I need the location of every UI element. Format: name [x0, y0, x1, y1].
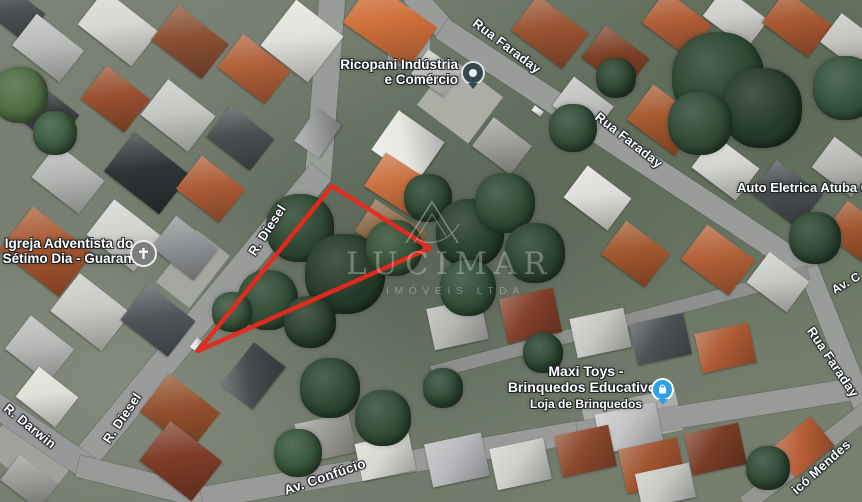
shopping-pin-circle [651, 378, 674, 401]
map-feature [284, 296, 336, 348]
shopping-bag-icon [657, 384, 668, 395]
map-feature [221, 342, 286, 409]
place-label-line: Auto Eletrica Atuba C [737, 181, 862, 196]
poi-pin-circle [461, 61, 485, 85]
map-feature [505, 223, 565, 283]
map-feature [424, 432, 490, 487]
satellite-map[interactable]: LUCIMAR IMÓVEIS LTDA Rua Faraday Rua Far… [0, 0, 862, 502]
map-feature [789, 212, 841, 264]
map-feature [300, 358, 360, 418]
church-pin-icon[interactable] [130, 240, 157, 267]
map-feature [78, 0, 159, 66]
map-feature [440, 260, 496, 316]
map-feature [176, 156, 245, 223]
map-feature [423, 368, 463, 408]
map-feature [366, 220, 422, 276]
map-feature [0, 67, 48, 123]
map-feature [81, 66, 150, 133]
place-label-igreja-adventista[interactable]: Igreja Adventista do Sétimo Dia - Guaran… [2, 236, 136, 267]
map-feature [813, 56, 862, 120]
map-feature [668, 91, 732, 155]
map-feature [746, 446, 790, 490]
map-feature [207, 105, 275, 170]
map-feature [212, 292, 252, 332]
place-label-subtitle: Loja de Brinquedos [505, 398, 667, 412]
church-pin-circle [130, 240, 157, 267]
map-feature [549, 104, 597, 152]
poi-pin-tail [468, 83, 478, 89]
poi-pin-icon[interactable] [461, 61, 485, 85]
map-feature [722, 68, 802, 148]
map-feature [33, 111, 77, 155]
cross-icon [137, 247, 150, 260]
place-label-line: Brinquedos Educativos [505, 380, 667, 396]
place-label-line: Maxi Toys - [505, 364, 667, 380]
place-label-ricopani[interactable]: Ricopani Indústria e Comércio [340, 57, 458, 88]
map-feature [684, 423, 747, 476]
shopping-pin-icon[interactable] [651, 378, 674, 401]
place-label-line: Igreja Adventista do [2, 236, 136, 251]
place-label-maxi-toys[interactable]: Maxi Toys - Brinquedos Educativos Loja d… [505, 364, 667, 411]
map-feature [601, 221, 670, 288]
map-feature [274, 429, 322, 477]
map-feature [355, 390, 411, 446]
place-label-line: e Comércio [340, 72, 458, 87]
map-feature [141, 79, 216, 151]
map-feature [31, 144, 104, 214]
map-feature [569, 308, 631, 359]
map-feature [694, 323, 756, 374]
place-label-line: Sétimo Dia - Guarani [2, 251, 136, 266]
map-feature [564, 165, 632, 230]
place-label-auto-eletrica[interactable]: Auto Eletrica Atuba C [737, 181, 862, 196]
place-label-line: Ricopani Indústria [340, 57, 458, 72]
map-feature [151, 5, 229, 79]
map-feature [596, 58, 636, 98]
shopping-pin-tail [658, 399, 668, 405]
map-feature [762, 0, 832, 57]
